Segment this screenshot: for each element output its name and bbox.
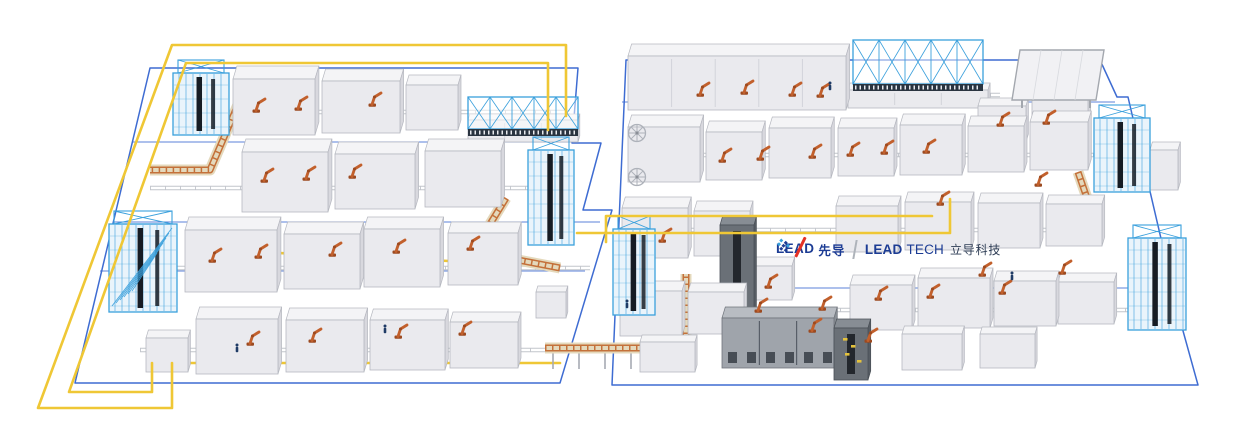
machine-block	[706, 121, 765, 180]
rack-tower	[613, 216, 655, 315]
machine-block	[196, 307, 282, 374]
rack-tower	[109, 211, 177, 312]
accent-light	[851, 345, 856, 348]
leadtech-chinese-text: 立导科技	[950, 241, 1001, 258]
leadtech-logo: LEAD 先导 LEAD TECH 立导科技	[776, 238, 1001, 260]
machine-block	[242, 139, 332, 212]
lead-chinese-text: 先导	[818, 240, 845, 259]
factory-scene-svg	[0, 0, 1235, 441]
leadtech-diamond-icon	[776, 238, 791, 255]
truss-rack	[853, 40, 983, 91]
operator-figure	[384, 325, 387, 334]
machine-block	[185, 217, 281, 292]
accent-light	[857, 360, 862, 363]
accent-light	[845, 353, 850, 356]
rack-tower	[1094, 105, 1150, 192]
accent-light	[843, 338, 848, 341]
factory-line-render: LEAD 先导 LEAD TECH 立导科技	[0, 0, 1235, 441]
logo-divider	[853, 240, 858, 259]
robot-arm	[1035, 173, 1048, 187]
machine-block	[450, 312, 521, 368]
machine-block	[284, 222, 364, 289]
machine-block	[722, 307, 837, 368]
wheel-conveyor	[629, 169, 646, 186]
machine-block	[980, 327, 1037, 368]
machine-block	[448, 222, 521, 285]
machine-block	[286, 308, 368, 372]
machine-block	[536, 286, 568, 318]
rack-crown	[1133, 225, 1181, 238]
machine-block	[1058, 273, 1117, 324]
machine-block	[628, 44, 850, 110]
leadtech-text-bold: LEAD	[865, 242, 903, 257]
flat-panel	[1012, 50, 1104, 108]
machine-block	[425, 139, 505, 207]
machine-block	[769, 117, 834, 178]
operator-figure	[829, 82, 832, 91]
rack-tower	[1128, 225, 1186, 330]
operator-figure	[626, 300, 629, 309]
leadtech-text-rest: TECH	[906, 242, 944, 257]
machine-block	[406, 75, 461, 130]
machine-block	[233, 66, 319, 135]
rack-tower	[528, 137, 574, 245]
machine-block	[322, 69, 404, 133]
machine-block	[994, 271, 1059, 326]
operator-figure	[1011, 272, 1014, 281]
machine-block	[834, 319, 871, 380]
machine-block	[1030, 111, 1091, 170]
rack-tower	[173, 60, 229, 135]
machine-block	[1150, 142, 1180, 190]
machine-block	[640, 335, 697, 372]
truss-rack	[468, 97, 578, 136]
machine-block	[370, 309, 448, 370]
machine-block	[900, 114, 965, 175]
machine-block	[335, 142, 419, 209]
rack-crown	[1099, 105, 1145, 118]
machine-block	[364, 217, 444, 287]
machine-block	[1046, 195, 1105, 246]
operator-figure	[236, 344, 239, 353]
machine-block	[902, 326, 964, 370]
robot-arm	[1059, 261, 1072, 275]
machine-block	[838, 118, 897, 176]
wheel-conveyor	[629, 125, 646, 142]
